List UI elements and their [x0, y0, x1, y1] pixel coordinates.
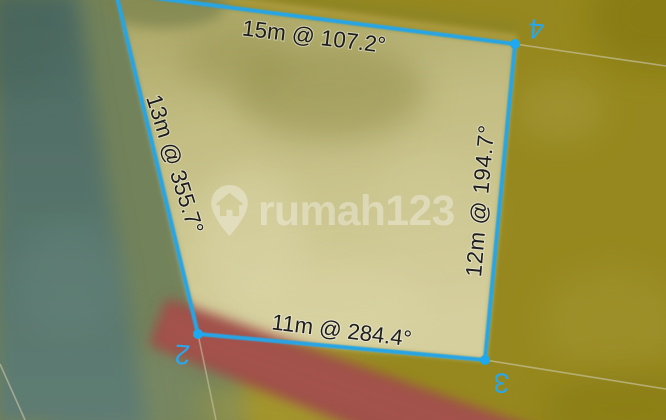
svg-text:3: 3 — [493, 367, 511, 399]
svg-text:2: 2 — [174, 338, 192, 370]
svg-text:rumah123: rumah123 — [258, 188, 455, 235]
svg-text:4: 4 — [528, 13, 546, 45]
